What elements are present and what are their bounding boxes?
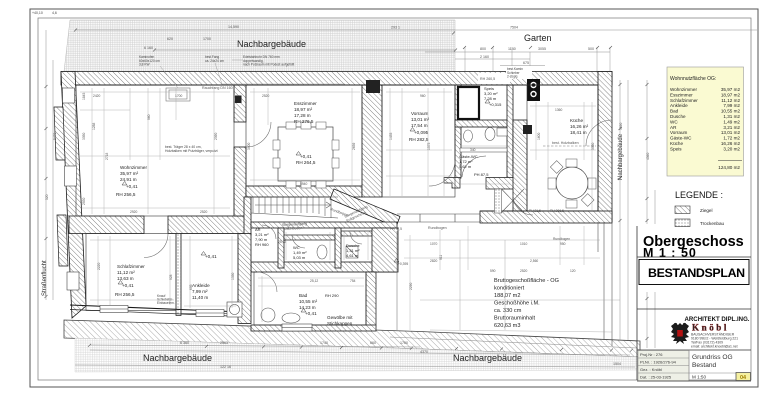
svg-text:16,26 m2: 16,26 m2 [721, 141, 741, 146]
svg-text:1070: 1070 [430, 242, 438, 246]
svg-text:695: 695 [189, 284, 193, 290]
svg-text:Bruttogeschoßfläche - OG: Bruttogeschoßfläche - OG [494, 278, 559, 284]
svg-text:1,72 m2: 1,72 m2 [723, 136, 740, 141]
svg-text:Garten: Garten [524, 33, 552, 43]
svg-text:7,99 m²: 7,99 m² [192, 289, 208, 294]
svg-text:Esszimmer: Esszimmer [294, 101, 317, 106]
svg-text:Bad: Bad [670, 109, 679, 114]
svg-text:18,97 m²: 18,97 m² [294, 107, 313, 112]
svg-text:620: 620 [167, 37, 173, 41]
svg-text:928: 928 [169, 274, 173, 280]
svg-text:1600: 1600 [537, 132, 541, 140]
svg-text:340: 340 [470, 148, 476, 152]
svg-text:RH 276,5: RH 276,5 [294, 119, 314, 124]
svg-text:Nachbargebäude: Nachbargebäude [143, 353, 212, 363]
svg-text:Gäste-WC: Gäste-WC [670, 136, 692, 141]
svg-text:Bestand: Bestand [692, 362, 717, 369]
svg-text:620,63 m3: 620,63 m3 [494, 323, 520, 329]
svg-text:675: 675 [523, 61, 529, 65]
svg-text:Küche: Küche [570, 118, 583, 123]
svg-text:Küche: Küche [670, 141, 683, 146]
svg-text:800: 800 [480, 47, 486, 51]
svg-text:500: 500 [588, 47, 594, 51]
svg-text:1740: 1740 [320, 341, 328, 345]
svg-text:3,20 m2: 3,20 m2 [723, 146, 740, 151]
svg-text:Dat. : 25-03-1925: Dat. : 25-03-1925 [640, 375, 672, 380]
svg-text:2520: 2520 [200, 210, 208, 214]
svg-text:RH 960: RH 960 [255, 242, 269, 247]
svg-text:1350: 1350 [231, 272, 235, 280]
svg-text:3055: 3055 [538, 47, 546, 51]
svg-text:1360: 1360 [555, 108, 563, 112]
svg-text:16,26 m²: 16,26 m² [570, 124, 589, 129]
svg-text:Rauchfang DN 160: Rauchfang DN 160 [202, 86, 233, 90]
svg-text:ca. 330 cm: ca. 330 cm [494, 308, 522, 314]
svg-text:Ziegel: Ziegel [700, 208, 713, 213]
svg-text:+0,41: +0,41 [305, 311, 317, 316]
svg-text:RH 282,5: RH 282,5 [409, 137, 429, 142]
svg-text:Proj.Nr : 276: Proj.Nr : 276 [640, 352, 663, 357]
svg-text:Nachbargebäude: Nachbargebäude [237, 39, 306, 49]
svg-text:1700: 1700 [203, 37, 211, 41]
svg-text:PH 21,5: PH 21,5 [529, 209, 541, 213]
svg-text:Vorraum: Vorraum [411, 111, 429, 116]
svg-text:04: 04 [740, 375, 747, 381]
svg-text:18,97 m2: 18,97 m2 [721, 92, 741, 97]
svg-text:960: 960 [420, 94, 426, 98]
svg-text:LEGENDE :: LEGENDE : [675, 190, 723, 200]
svg-text:11,40 m: 11,40 m [192, 295, 208, 300]
svg-text:1010: 1010 [520, 242, 528, 246]
svg-text:660: 660 [370, 341, 376, 345]
svg-text:13,01 m2: 13,01 m2 [721, 130, 741, 135]
svg-text:1435: 1435 [389, 132, 393, 140]
svg-text:7504: 7504 [510, 26, 518, 30]
svg-text:+40,10: +40,10 [32, 11, 43, 15]
svg-text:1,31 m2: 1,31 m2 [723, 114, 740, 119]
svg-text:4370: 4370 [420, 350, 428, 354]
svg-text:14,23 m: 14,23 m [299, 305, 316, 310]
svg-text:+0,41: +0,41 [126, 184, 138, 189]
svg-text:2659: 2659 [352, 142, 356, 150]
svg-text:Grundriss OG: Grundriss OG [692, 354, 733, 361]
svg-text:+0,315: +0,315 [489, 102, 502, 107]
svg-text:2090: 2090 [214, 132, 218, 140]
svg-text:RH 290: RH 290 [325, 293, 339, 298]
svg-text:Rundbogen: Rundbogen [428, 226, 447, 230]
svg-text:BESTANDSPLAN: BESTANDSPLAN [648, 266, 745, 280]
svg-text:6 160: 6 160 [144, 46, 153, 50]
svg-text:1575: 1575 [427, 142, 431, 150]
svg-text:3890: 3890 [619, 122, 623, 130]
svg-text:188,07 m2: 188,07 m2 [494, 293, 520, 299]
svg-text:email: architekt.knoebl@a1.net: email: architekt.knoebl@a1.net [691, 345, 738, 349]
svg-text:25,12: 25,12 [310, 279, 318, 283]
svg-text:Speis: Speis [670, 146, 682, 151]
svg-text:520: 520 [45, 194, 49, 200]
svg-text:6 360: 6 360 [180, 341, 189, 345]
svg-text:Gez. : Knöbl: Gez. : Knöbl [640, 367, 662, 372]
svg-text:Trockenbau: Trockenbau [700, 221, 725, 226]
svg-text:35,97 m²: 35,97 m² [120, 171, 139, 176]
svg-text:24,91 m: 24,91 m [120, 177, 137, 182]
svg-text:AR: AR [670, 125, 677, 130]
svg-text:17,28 m: 17,28 m [294, 113, 311, 118]
svg-text:Nachbargebäude: Nachbargebäude [618, 133, 624, 180]
svg-text:Bad: Bad [299, 293, 308, 298]
svg-text:Nachbargebäude: Nachbargebäude [453, 353, 522, 363]
svg-text:M 1 : 50: M 1 : 50 [643, 246, 697, 260]
svg-text:10,55 m²: 10,55 m² [299, 299, 318, 304]
svg-text:RH 256,5: RH 256,5 [116, 192, 136, 197]
svg-text:2820: 2820 [430, 259, 438, 263]
svg-text:3050: 3050 [82, 132, 86, 140]
svg-text:2563: 2563 [220, 341, 228, 345]
svg-text:konditioniert: konditioniert [494, 286, 525, 292]
svg-text:2,560: 2,560 [530, 259, 538, 263]
svg-text:Stichkappen: Stichkappen [327, 321, 353, 326]
svg-text:RH 206,5: RH 206,5 [550, 209, 564, 213]
svg-text:RH 260,5: RH 260,5 [480, 77, 495, 81]
svg-text:Esszimmer: Esszimmer [670, 92, 693, 97]
svg-text:293 1: 293 1 [391, 26, 400, 30]
svg-text:5940: 5940 [300, 182, 308, 186]
svg-text:2930: 2930 [82, 197, 86, 205]
svg-text:4,6: 4,6 [52, 11, 57, 15]
svg-text:Ankleide: Ankleide [192, 283, 210, 288]
svg-text:11,12 m2: 11,12 m2 [721, 98, 740, 103]
svg-text:Einbauelem.: Einbauelem. [157, 301, 175, 305]
svg-text:RH 256,5: RH 256,5 [115, 292, 135, 297]
svg-text:PH 77,5: PH 77,5 [390, 227, 402, 231]
svg-text:3050: 3050 [591, 142, 595, 150]
svg-text:Wohnzimmer: Wohnzimmer [120, 165, 147, 170]
svg-text:Wohnzimmer: Wohnzimmer [670, 87, 697, 92]
svg-text:Wohnnutzfläche OG:: Wohnnutzfläche OG: [670, 76, 716, 82]
svg-text:18,41 m: 18,41 m [570, 130, 587, 135]
svg-text:+0,41: +0,41 [205, 254, 217, 259]
svg-text:124,80 m2: 124,80 m2 [718, 165, 740, 170]
svg-text:3400: 3400 [247, 142, 251, 150]
svg-text:PH 87,5: PH 87,5 [474, 172, 489, 177]
svg-text:11,12 m²: 11,12 m² [117, 270, 135, 275]
svg-text:35,97 m2: 35,97 m2 [721, 87, 741, 92]
svg-text:+0,095: +0,095 [414, 130, 429, 135]
svg-text:950: 950 [560, 242, 566, 246]
svg-text:WC: WC [670, 119, 678, 124]
svg-text:1845: 1845 [82, 92, 86, 100]
svg-text:960: 960 [147, 114, 151, 120]
svg-text:Holzbalken mit Putzträger, ver: Holzbalken mit Putzträger, verputzt [165, 149, 218, 153]
svg-text:1760: 1760 [400, 341, 408, 345]
svg-text:Geschoßhöhe i.M.: Geschoßhöhe i.M. [494, 301, 540, 307]
svg-text:122 16: 122 16 [220, 365, 231, 369]
svg-text:nach Putzraum mit Podest aufge: nach Putzraum mit Podest aufgefüllt [243, 63, 294, 67]
svg-text:Schlafzimmer: Schlafzimmer [117, 264, 145, 269]
svg-text:120: 120 [570, 269, 576, 273]
svg-text:13,01 m²: 13,01 m² [411, 117, 430, 122]
svg-text:2520: 2520 [520, 269, 528, 273]
svg-text:Vorraum: Vorraum [670, 130, 688, 135]
svg-text:5,03 m: 5,03 m [293, 255, 306, 260]
svg-text:5470: 5470 [53, 132, 57, 140]
svg-text:13,63 m: 13,63 m [117, 276, 134, 281]
svg-text:1504: 1504 [613, 362, 621, 366]
svg-text:10,55 m2: 10,55 m2 [721, 109, 741, 114]
svg-text:+0,41: +0,41 [122, 283, 134, 288]
svg-text:Ankleide: Ankleide [670, 103, 688, 108]
svg-text:7,28 m: 7,28 m [484, 96, 497, 101]
svg-text:2290: 2290 [409, 282, 413, 290]
svg-text:best. Holzbalken: best. Holzbalken [552, 141, 579, 145]
svg-text:17,54 m: 17,54 m [411, 123, 428, 128]
svg-text:7,99 m2: 7,99 m2 [723, 103, 740, 108]
svg-text:1700: 1700 [175, 94, 183, 98]
svg-text:PLNr. : 1926/276-94: PLNr. : 1926/276-94 [640, 360, 677, 365]
svg-text:590: 590 [490, 269, 496, 273]
svg-text:3,8 KW: 3,8 KW [139, 63, 149, 67]
svg-text:Bruttorauminhalt: Bruttorauminhalt [494, 316, 535, 322]
svg-text:Gewölbe mit: Gewölbe mit [327, 315, 353, 320]
svg-text:2420: 2420 [93, 94, 101, 98]
svg-text:Schlafzimmer: Schlafzimmer [670, 98, 698, 103]
svg-text:2-zügig: 2-zügig [507, 75, 518, 79]
svg-text:4,61 m: 4,61 m [346, 253, 359, 258]
svg-text:2718: 2718 [105, 152, 109, 160]
svg-text:4560: 4560 [646, 152, 650, 160]
svg-text:M 1:50: M 1:50 [692, 375, 706, 380]
svg-text:2220: 2220 [97, 262, 101, 270]
svg-text:+0,41: +0,41 [300, 154, 312, 159]
svg-text:Knöbl: Knöbl [692, 323, 729, 333]
svg-text:ca. 24x24 cm: ca. 24x24 cm [205, 59, 224, 63]
svg-text:911: 911 [439, 255, 443, 260]
svg-text:+0,395: +0,395 [398, 262, 408, 266]
svg-text:25,12: 25,12 [278, 240, 286, 244]
svg-text:Dusche: Dusche [670, 114, 686, 119]
svg-text:2520: 2520 [262, 94, 270, 98]
svg-text:Rundbogen: Rundbogen [553, 237, 570, 241]
svg-text:RH 264,5: RH 264,5 [296, 160, 316, 165]
svg-text:1288: 1288 [92, 122, 96, 130]
svg-text:1,49 m2: 1,49 m2 [723, 119, 740, 124]
svg-text:3,21 m2: 3,21 m2 [723, 125, 740, 130]
svg-text:14,590: 14,590 [228, 25, 239, 29]
svg-text:Straßenflucht: Straßenflucht [42, 260, 48, 296]
svg-text:754: 754 [350, 279, 356, 283]
svg-text:2920: 2920 [130, 210, 138, 214]
svg-text:2 160: 2 160 [480, 55, 489, 59]
